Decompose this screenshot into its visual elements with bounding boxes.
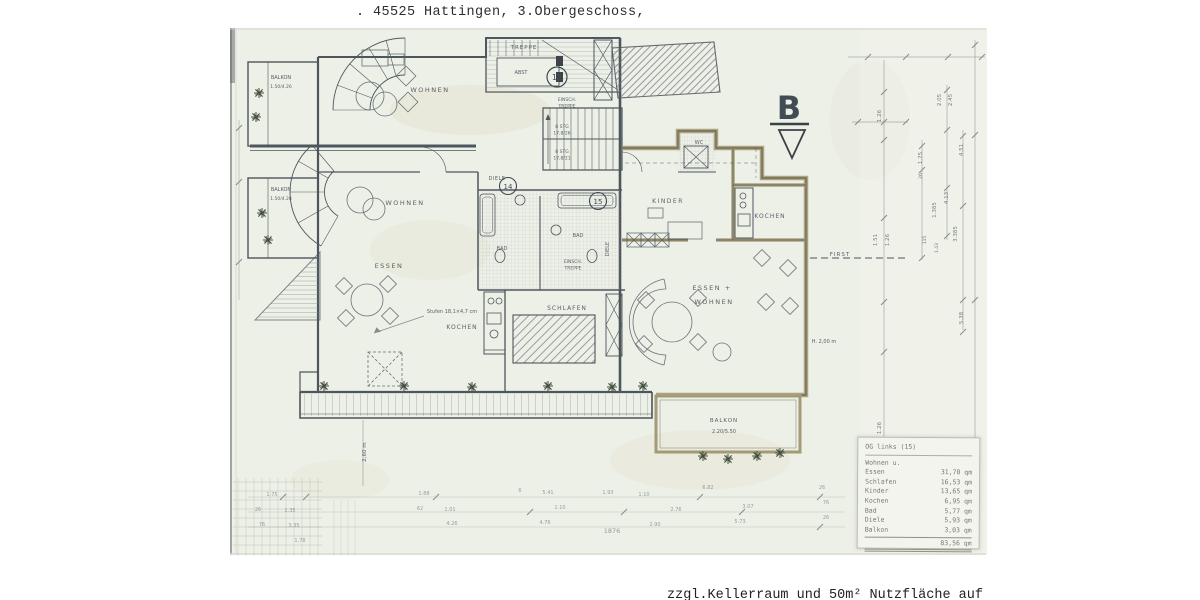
dim-bottom: 2.90 xyxy=(649,522,660,528)
label-kochen-right: KOCHEN xyxy=(754,213,785,220)
area-table-row: Kochen6,95 qm xyxy=(865,497,972,507)
label-diele-right: DIELE xyxy=(605,242,611,256)
page-title: . 45525 Hattingen, 3.Obergeschoss, xyxy=(356,5,645,20)
dim-right: 1.51 xyxy=(873,234,879,246)
area-row-label: Wohnen u. xyxy=(865,458,900,468)
label-einsch-top-2: TREPPE xyxy=(558,104,576,110)
label-hoehe-note: H. 2,00 m xyxy=(812,339,837,345)
area-row-label: Bad xyxy=(865,506,877,516)
dim-bottom: 62 xyxy=(417,506,423,512)
label-schlafen: SCHLAFEN xyxy=(547,305,587,312)
label-stg2b: 17,8/21 xyxy=(553,156,570,162)
area-table-row: Balkon3,03 qm xyxy=(865,525,972,535)
dim-bottom: 6.82 xyxy=(702,485,713,491)
unit-13-number: 13 xyxy=(552,73,562,82)
label-stg1b: 17,8/26 xyxy=(553,131,570,137)
dim-right: 4.13 xyxy=(944,191,950,204)
dim-bottom: 1.88 xyxy=(418,491,429,497)
label-bad-right: BAD xyxy=(573,233,584,239)
scanned-floorplan-page: . 45525 Hattingen, 3.Obergeschoss, xyxy=(0,0,1200,600)
dim-bottom: 76 xyxy=(259,522,265,528)
dim-bottom: 1.78 xyxy=(294,538,305,544)
label-balkon-ml: BALKON xyxy=(271,187,292,193)
label-abst: ABST xyxy=(515,70,529,76)
label-first-ridge: FIRST xyxy=(830,252,850,258)
dim-bottom: 26 xyxy=(823,515,829,521)
dim-bottom: 4.76 xyxy=(539,520,550,526)
label-balkon-tl: BALKON xyxy=(271,75,292,81)
label-balkon-br: BALKON xyxy=(710,418,738,424)
area-row-label: Kinder xyxy=(865,487,889,497)
area-row-label: Kochen xyxy=(865,497,889,507)
area-row-value: 5,93 qm xyxy=(944,516,971,526)
area-row-label: Balkon xyxy=(865,525,889,535)
unit-15-number: 15 xyxy=(594,198,603,206)
label-einsch-bath-2: TREPPE xyxy=(564,266,582,272)
label-depth-note: 2,60 m xyxy=(362,442,368,461)
unit-14-number: 14 xyxy=(504,183,513,191)
area-table-total: 83,56 qm xyxy=(865,537,972,552)
dim-bottom: 1.35 xyxy=(284,508,295,514)
dim-right: 115 xyxy=(922,236,928,245)
label-diele-left: DIELE xyxy=(489,176,506,182)
floorplan-drawing: 13 14 15 B WOHNEN WOHNEN ESSEN KOCHEN SC… xyxy=(0,0,1200,600)
dim-bottom: 1.10 xyxy=(638,492,649,498)
label-kinder: KINDER xyxy=(652,198,684,205)
dim-right: 4.51 xyxy=(959,144,965,156)
dim-bottom: 26 xyxy=(255,507,261,513)
label-stufen-note: Stufen 18,1×4,7 cm xyxy=(427,309,478,315)
label-balkon-ml-dim: 1.50/4.26 xyxy=(270,196,292,202)
dim-right: 1.75 xyxy=(918,151,924,164)
label-wohnen-upper: WOHNEN xyxy=(410,86,449,94)
area-row-label: Diele xyxy=(865,516,885,526)
label-balkon-br-dim: 2.20/5.50 xyxy=(712,429,736,435)
area-table-header: OG links (15) xyxy=(865,443,972,456)
label-einsch-bath-1: EINSCH. xyxy=(564,259,582,265)
label-balkon-tl-dim: 1.50/4.26 xyxy=(270,84,292,90)
area-table: OG links (15) Wohnen u. Essen31,70 qm Sc… xyxy=(857,437,981,550)
dim-right: 5.38 xyxy=(959,311,965,324)
section-letter: B xyxy=(777,89,801,127)
footer-line-1: zzgl.Kellerraum und 50m² Nutzfläche auf xyxy=(667,587,983,600)
dim-bottom: 4.26 xyxy=(446,521,457,527)
label-stg2a: 8 STG xyxy=(555,149,569,155)
dim-right: 1.385 xyxy=(932,202,938,218)
dim-right: 26 xyxy=(918,173,924,179)
label-stg1a: 8 STG xyxy=(555,124,569,130)
area-row-value: 13,65 qm xyxy=(941,488,972,498)
area-row-label: Schlafen xyxy=(865,477,896,487)
dim-right: 1.26 xyxy=(885,233,891,246)
area-row-value: 16,53 qm xyxy=(941,478,972,488)
dim-bottom: 5.73 xyxy=(734,519,745,525)
dim-bottom: 1.75 xyxy=(266,492,277,498)
dim-bottom: 3.35 xyxy=(288,523,299,529)
label-einsch-top-1: EINSCH. xyxy=(558,97,576,103)
area-row-value: 3,03 qm xyxy=(944,526,971,536)
dim-right: 2.45 xyxy=(948,93,954,106)
area-row-value: 6,95 qm xyxy=(944,497,971,507)
label-wohnen-right: WOHNEN xyxy=(694,298,733,306)
dim-bottom: 1.93 xyxy=(602,490,613,496)
dim-right: 1.26 xyxy=(877,421,883,434)
dim-bottom: 3.07 xyxy=(742,504,753,510)
dim-bottom: 26 xyxy=(819,485,825,491)
area-row-label: Essen xyxy=(865,468,885,478)
dim-bottom: 5.41 xyxy=(542,490,553,496)
dim-bottom: 76 xyxy=(823,500,829,506)
dim-right: 1.26 xyxy=(877,109,883,122)
area-row-value: 31,70 qm xyxy=(941,468,972,478)
dim-bottom: 6 xyxy=(518,488,521,494)
label-treppe: TREPPE xyxy=(510,45,538,51)
label-kochen-left: KOCHEN xyxy=(446,324,477,331)
dim-right: 3.385 xyxy=(953,226,959,242)
page-footer: zzgl.Kellerraum und 50m² Nutzfläche auf … xyxy=(667,553,983,600)
dim-right: 2.05 xyxy=(937,93,943,106)
dim-bottom: 1.10 xyxy=(554,505,565,511)
label-essen-right: ESSEN + xyxy=(692,284,731,292)
dim-right: 1.43 xyxy=(934,243,940,253)
label-wc: WC xyxy=(695,140,704,146)
label-essen-left: ESSEN xyxy=(375,262,404,270)
dim-bottom: 2.76 xyxy=(670,507,681,513)
label-bad-left: BAD xyxy=(497,246,508,252)
label-big-dim: 1876 xyxy=(604,527,621,535)
label-wohnen-mid: WOHNEN xyxy=(385,199,424,207)
area-row-value: 5,77 qm xyxy=(944,507,971,517)
dim-bottom: 1.01 xyxy=(444,507,455,513)
